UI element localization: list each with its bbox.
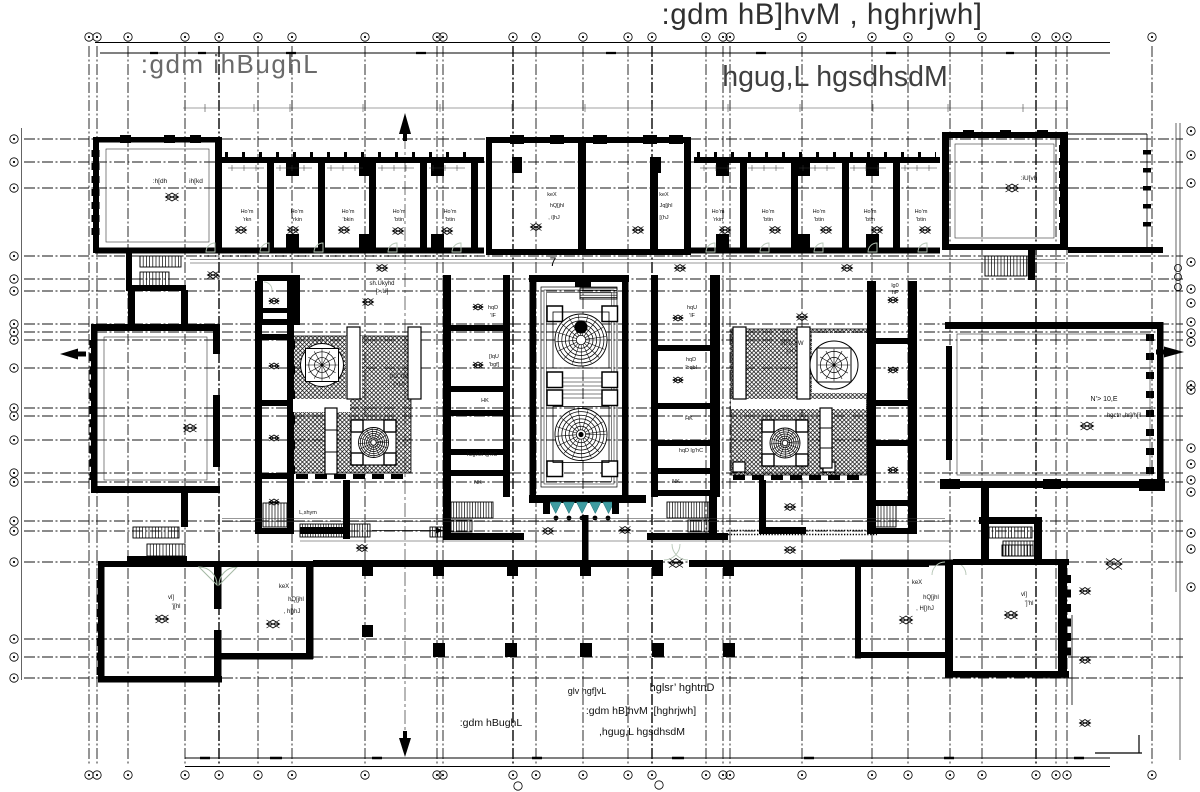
svg-text:ih[kd: ih[kd xyxy=(189,178,203,185)
svg-text:NK: NK xyxy=(672,479,680,485)
svg-text::gdm ihBughL: :gdm ihBughL xyxy=(141,49,319,79)
svg-text:,hgug,L hgsdhsdM: ,hgug,L hgsdhsdM xyxy=(599,726,685,738)
svg-text:[>U]: [>U] xyxy=(786,349,798,355)
svg-text:’btin: ’btin xyxy=(763,217,773,223)
svg-text:Ho’m: Ho’m xyxy=(241,209,254,215)
svg-text::iU[vh: :iU[vh xyxy=(1021,175,1038,182)
svg-text:’j[hl: ’j[hl xyxy=(171,604,180,610)
svg-text:’lF: ’lF xyxy=(689,313,695,319)
svg-text:[(hJ: [(hJ xyxy=(659,215,668,221)
svg-text:hsghM lg’hC: hsghM lg’hC xyxy=(467,452,498,458)
svg-text:’]’hl: ’]’hl xyxy=(1024,601,1033,607)
svg-text:Ho’m: Ho’m xyxy=(762,209,775,215)
svg-text:, H[)hJ: , H[)hJ xyxy=(916,606,934,612)
svg-text:keX: keX xyxy=(659,192,669,198)
svg-text:hQ[jhl: hQ[jhl xyxy=(923,595,939,601)
svg-text:hqU: hqU xyxy=(687,305,697,311)
svg-text:Ho’m: Ho’m xyxy=(864,209,877,215)
svg-text:NK: NK xyxy=(474,480,482,486)
svg-text:Ho’m: Ho’m xyxy=(444,209,457,215)
svg-text:hglsr’ hghtnD: hglsr’ hghtnD xyxy=(650,682,715,694)
svg-text:hqD lg’hC: hqD lg’hC xyxy=(679,448,703,454)
svg-text:Ho’m: Ho’m xyxy=(393,209,406,215)
svg-text:hgug,L hgsdhsdM: hgug,L hgsdhsdM xyxy=(722,61,948,93)
svg-text:Ho’m: Ho’m xyxy=(291,209,304,215)
svg-text:vl]: vl] xyxy=(1021,592,1027,598)
svg-text:hQ[jhl: hQ[jhl xyxy=(550,203,564,209)
svg-text:glv hgf]vL: glv hgf]vL xyxy=(568,686,607,696)
svg-text:HK: HK xyxy=(481,398,489,404)
svg-text:hgctn ,hr]/h[il: hgctn ,hr]/h[il xyxy=(1107,413,1141,419)
svg-text:’btin: ’btin xyxy=(916,217,926,223)
svg-text::gdm hB]hvM , hghrjwh]: :gdm hB]hvM , hghrjwh] xyxy=(662,0,983,31)
svg-text:’bqbl: ’bqbl xyxy=(685,365,697,371)
svg-text:hqD: hqD xyxy=(686,357,696,363)
svg-text:vl]: vl] xyxy=(168,595,174,601)
svg-text:’rkin: ’rkin xyxy=(713,217,723,223)
svg-text:’btin: ’btin xyxy=(814,217,824,223)
svg-text:’btin: ’btin xyxy=(445,217,455,223)
svg-text:hF: hF xyxy=(892,290,899,296)
svg-text:[>.U]: [>.U] xyxy=(376,289,389,295)
svg-text:sh.U bW: sh.U bW xyxy=(780,341,803,347)
svg-text:Ho’m: Ho’m xyxy=(712,209,725,215)
svg-text:’btin: ’btin xyxy=(394,217,404,223)
svg-text:7: 7 xyxy=(550,255,557,269)
svg-text::gdm hBughL: :gdm hBughL xyxy=(460,717,523,729)
svg-text:hqD: hqD xyxy=(488,305,498,311)
svg-text:Ho’m: Ho’m xyxy=(915,209,928,215)
svg-text:, i]hJ: , i]hJ xyxy=(548,215,560,221)
svg-text:[lqU: [lqU xyxy=(489,354,499,360)
svg-text:HK: HK xyxy=(685,416,693,422)
svg-text::h[dh: :h[dh xyxy=(153,178,168,185)
svg-text:keX: keX xyxy=(547,192,557,198)
svg-text:’btin: ’btin xyxy=(865,217,875,223)
svg-text:lg0: lg0 xyxy=(891,283,898,289)
svg-text:hQ[jhl: hQ[jhl xyxy=(288,597,304,603)
svg-text:Ho’m: Ho’m xyxy=(342,209,355,215)
svg-text:’rkn: ’rkn xyxy=(243,217,252,223)
svg-text:[hJ ’hV: [hJ ’hV xyxy=(390,374,408,380)
svg-text:’bkin: ’bkin xyxy=(342,217,353,223)
svg-text:[>U]: [>U] xyxy=(393,382,405,388)
svg-text::gdm hB]hvM ,[hghrjwh]: :gdm hB]hvM ,[hghrjwh] xyxy=(586,705,696,717)
svg-text:, h[)hJ: , h[)hJ xyxy=(284,609,301,615)
svg-text:keX: keX xyxy=(279,584,289,590)
svg-text:’lF: ’lF xyxy=(490,313,496,319)
svg-text:’rkin: ’rkin xyxy=(292,217,302,223)
svg-text:L,shym: L,shym xyxy=(299,510,317,516)
svg-text:’bgf]: ’bgf] xyxy=(489,362,500,368)
svg-text:sh.Ukyhd: sh.Ukyhd xyxy=(369,281,394,287)
svg-text:Jq[jhl: Jq[jhl xyxy=(660,203,673,209)
svg-text:keX: keX xyxy=(912,580,922,586)
svg-text:Ho’m: Ho’m xyxy=(813,209,826,215)
svg-text:N’> 10,E: N’> 10,E xyxy=(1090,396,1117,403)
